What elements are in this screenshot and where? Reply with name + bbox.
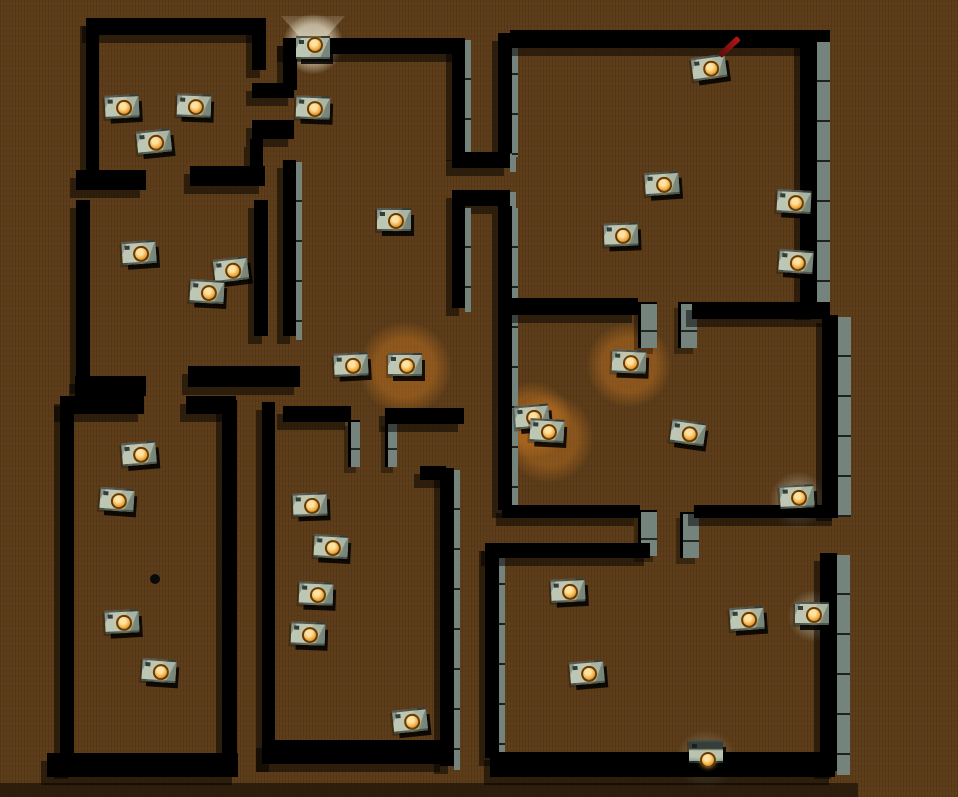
wall-segment	[452, 152, 510, 168]
robot[interactable]	[213, 256, 250, 283]
robot[interactable]	[299, 581, 334, 605]
wall-segment	[262, 402, 275, 764]
robot-led	[700, 752, 716, 768]
robot[interactable]	[550, 578, 585, 603]
wall-segment	[440, 468, 454, 766]
wall-segment	[502, 505, 640, 518]
wall-segment	[452, 38, 465, 153]
wall-shadow-band	[0, 783, 858, 797]
wall-segment	[348, 420, 360, 467]
robot[interactable]	[392, 707, 428, 733]
wall-segment	[822, 315, 838, 513]
wall-segment	[452, 206, 465, 308]
robot[interactable]	[778, 249, 814, 274]
wall-segment	[262, 740, 446, 764]
wall-segment	[252, 120, 294, 139]
robot-with-antenna[interactable]	[691, 54, 728, 82]
wall-segment	[508, 298, 638, 315]
wall-segment	[47, 753, 238, 777]
robot[interactable]	[177, 93, 212, 117]
wall-segment	[222, 400, 237, 768]
robot[interactable]	[313, 534, 348, 559]
wall-segment	[76, 170, 146, 190]
robot[interactable]	[189, 279, 224, 304]
robot[interactable]	[644, 171, 680, 196]
wall-segment	[283, 38, 297, 90]
wall-segment	[485, 543, 499, 758]
robot[interactable]	[689, 740, 723, 763]
robot[interactable]	[388, 353, 422, 376]
wall-segment	[75, 376, 146, 396]
wall-segment	[254, 200, 268, 336]
robot[interactable]	[104, 94, 139, 119]
robot[interactable]	[293, 492, 328, 516]
robot[interactable]	[104, 609, 139, 634]
wall-segment	[385, 408, 464, 424]
robot[interactable]	[779, 484, 814, 509]
wall-segment	[250, 139, 263, 172]
robot[interactable]	[291, 621, 326, 645]
wall-segment	[510, 30, 830, 48]
robot[interactable]	[296, 95, 331, 119]
robot[interactable]	[612, 349, 647, 373]
wall-segment	[490, 752, 835, 777]
floor-debris-dot	[150, 574, 160, 584]
robot[interactable]	[99, 487, 135, 512]
robot-led	[388, 213, 404, 229]
wall-segment	[680, 512, 699, 558]
robot[interactable]	[569, 660, 605, 686]
wall-segment	[487, 543, 650, 558]
robot[interactable]	[604, 222, 639, 246]
wall-segment	[452, 190, 510, 206]
robot[interactable]	[776, 189, 811, 214]
robot-led	[307, 37, 323, 53]
robot[interactable]	[529, 418, 564, 443]
robot[interactable]	[136, 128, 172, 154]
robot[interactable]	[333, 352, 368, 377]
wall-segment	[283, 160, 296, 336]
wall-segment	[820, 553, 837, 771]
wall-segment	[692, 302, 830, 319]
robot[interactable]	[377, 208, 411, 231]
game-viewport	[0, 0, 958, 797]
wall-segment	[694, 505, 838, 518]
robot[interactable]	[141, 658, 177, 683]
wall-segment	[60, 398, 74, 771]
wall-segment	[498, 206, 512, 510]
wall-segment	[252, 18, 266, 70]
robot[interactable]	[670, 419, 707, 447]
wall-segment	[86, 18, 99, 178]
robot-led	[806, 607, 822, 623]
wall-segment	[188, 366, 300, 387]
robot[interactable]	[795, 602, 829, 625]
robot[interactable]	[121, 240, 157, 265]
wall-segment	[498, 33, 512, 153]
wall-segment	[283, 406, 351, 422]
robot-led	[399, 358, 415, 374]
wall-segment	[638, 302, 657, 348]
wall-segment	[385, 420, 397, 467]
robot-lamp[interactable]	[296, 36, 330, 59]
wall-segment	[76, 200, 90, 386]
robot[interactable]	[729, 606, 765, 631]
wall-segment	[88, 18, 264, 35]
robot[interactable]	[121, 441, 157, 467]
